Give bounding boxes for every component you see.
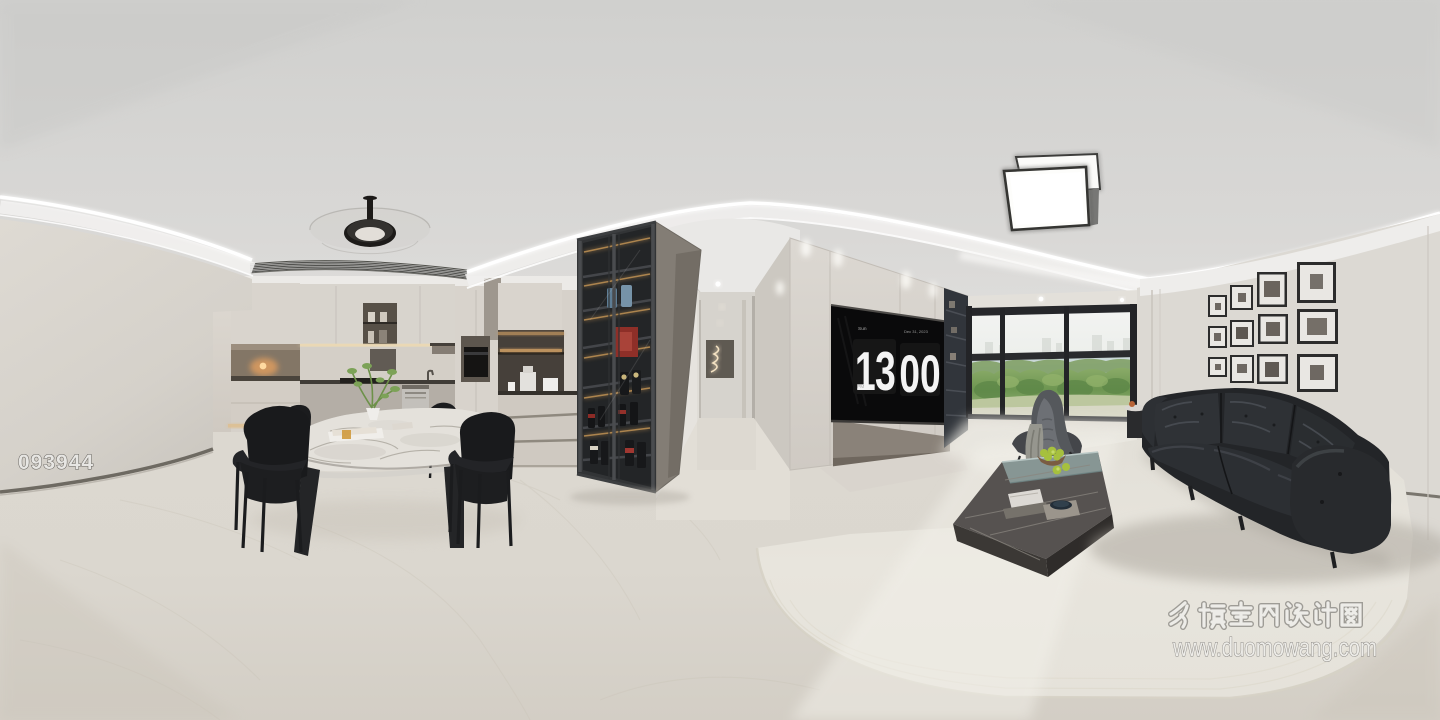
svg-text:13: 13	[855, 340, 895, 402]
svg-text:093944: 093944	[18, 451, 94, 474]
svg-text:Sun: Sun	[858, 326, 867, 332]
svg-text:PM: PM	[857, 384, 864, 390]
svg-text:www.duomowang.com: www.duomowang.com	[1172, 632, 1377, 662]
svg-text:00: 00	[899, 344, 940, 403]
svg-text:Dec 31, 2023: Dec 31, 2023	[904, 329, 929, 334]
